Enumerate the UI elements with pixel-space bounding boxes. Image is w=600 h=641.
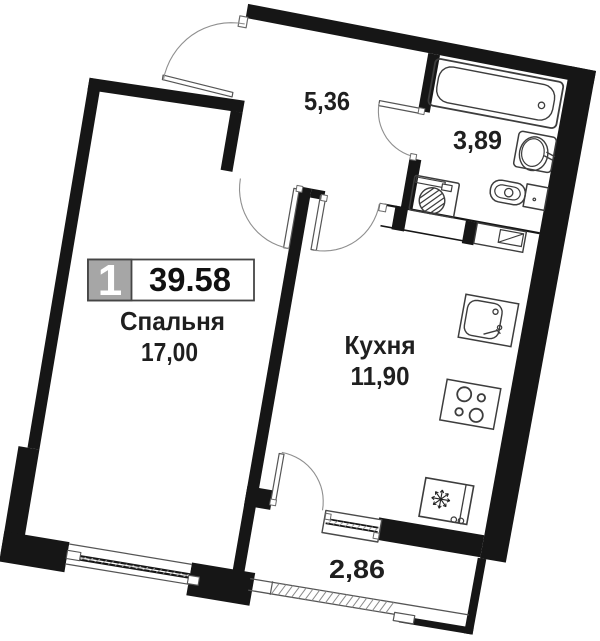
svg-text:2,86: 2,86 xyxy=(329,554,385,584)
svg-text:Кухня: Кухня xyxy=(345,330,416,360)
svg-text:39.58: 39.58 xyxy=(149,261,231,298)
svg-text:3,89: 3,89 xyxy=(453,125,502,155)
svg-text:17,00: 17,00 xyxy=(141,337,198,367)
svg-text:1: 1 xyxy=(98,256,122,305)
svg-text:11,90: 11,90 xyxy=(351,361,410,391)
svg-text:5,36: 5,36 xyxy=(304,86,350,116)
svg-text:Спальня: Спальня xyxy=(120,306,225,336)
